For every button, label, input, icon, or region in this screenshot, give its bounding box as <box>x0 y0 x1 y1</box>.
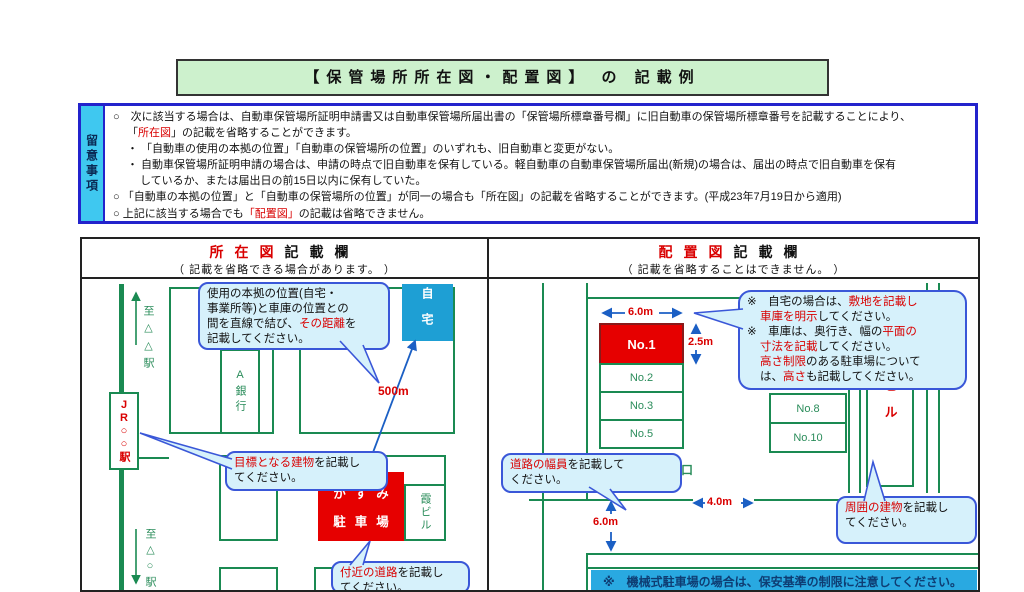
left-panel-subtitle: （ 記載を省略できる場合があります。 ） <box>82 261 487 277</box>
right-panel-subtitle: （ 記載を省略することはできません。 ） <box>489 261 978 277</box>
dim-gate: 4.0m <box>707 496 732 508</box>
dim-depth: 2.5m <box>688 336 713 348</box>
dim-width-top: 6.0m <box>628 306 653 318</box>
left-panel-title: 所在図記載欄 <box>82 242 487 262</box>
lower-block-line <box>588 567 978 569</box>
home-box: 自宅 <box>402 284 453 341</box>
right-panel-title: 配置図記載欄 <box>489 242 978 262</box>
road-bottom-line <box>588 553 978 555</box>
stall-no1: No.1 <box>599 323 684 365</box>
page-title: 【保管場所所在図・配置図】 の 記載例 <box>176 59 829 96</box>
callout-road-width: 道路の幅員を記載してください。 <box>501 453 682 493</box>
to-station-bottom-label: 至△○駅 <box>142 525 158 590</box>
city-block <box>219 567 278 590</box>
right-panel-header: 配置図記載欄 （ 記載を省略することはできません。 ） <box>489 239 978 279</box>
stall-no5: No.5 <box>599 419 684 449</box>
left-map: 至△△駅 至△○駅 JR○○駅 A銀行 自宅 かすみ 駐車場 霞ビル 500m <box>82 279 487 590</box>
panel-layout-map: 配置図記載欄 （ 記載を省略することはできません。 ） No.1 <box>489 239 978 590</box>
stall-no10: No.10 <box>769 422 847 453</box>
callout-surroundings: 周囲の建物を記載してください。 <box>836 496 977 544</box>
dim-road: 6.0m <box>593 516 618 528</box>
station-box: JR○○駅 <box>109 392 139 470</box>
notes-body: ○ 次に該当する場合は、自動車保管場所証明申請書又は自動車保管場所届出書の「保管… <box>105 106 975 221</box>
mechanical-parking-banner: ※ 機械式駐車場の場合は、保安基準の制限に注意してください。 <box>591 570 977 590</box>
callout-home-parcel: ※ 自宅の場合は、敷地を記載し車庫を明示してください。※ 車庫は、奥行き、幅の平… <box>738 290 967 390</box>
callout-landmark: 目標となる建物を記載してください。 <box>225 451 388 491</box>
side-road-line <box>542 283 544 590</box>
kasumi-parking-line2: 駐車場 <box>324 511 398 530</box>
distance-label: 500m <box>378 384 409 398</box>
bank-box: A銀行 <box>220 349 260 434</box>
road-top-line <box>529 499 693 501</box>
kasumi-building-box: 霞ビル <box>404 484 446 541</box>
notes-box: 留意事項 ○ 次に該当する場合は、自動車保管場所証明申請書又は自動車保管場所届出… <box>78 103 978 224</box>
stall-no3: No.3 <box>599 391 684 421</box>
notes-side-label-text: 留意事項 <box>84 134 101 194</box>
document-page: 【保管場所所在図・配置図】 の 記載例 留意事項 ○ 次に該当する場合は、自動車… <box>0 0 1024 592</box>
stall-no2: No.2 <box>599 363 684 393</box>
left-panel-header: 所在図記載欄 （ 記載を省略できる場合があります。 ） <box>82 239 487 279</box>
stall-no8: No.8 <box>769 393 847 424</box>
diagram-table: 所在図記載欄 （ 記載を省略できる場合があります。 ） 至△△駅 至△○駅 JR… <box>80 237 980 592</box>
side-road-line <box>586 553 588 590</box>
notes-side-label: 留意事項 <box>81 106 105 221</box>
callout-distance: 使用の本拠の位置(自宅・事業所等)と車庫の位置との間を直線で結び、その距離を記載… <box>198 282 390 350</box>
callout-roads: 付近の道路を記載してください。 <box>331 561 470 590</box>
right-map: No.1 No.2 No.3 No.5 No.8 No.10 霞ビル 出入口 ○… <box>489 279 978 590</box>
to-station-top-label: 至△△駅 <box>140 289 156 389</box>
panel-location-map: 所在図記載欄 （ 記載を省略できる場合があります。 ） 至△△駅 至△○駅 JR… <box>82 239 489 590</box>
station-access-line <box>138 457 169 459</box>
